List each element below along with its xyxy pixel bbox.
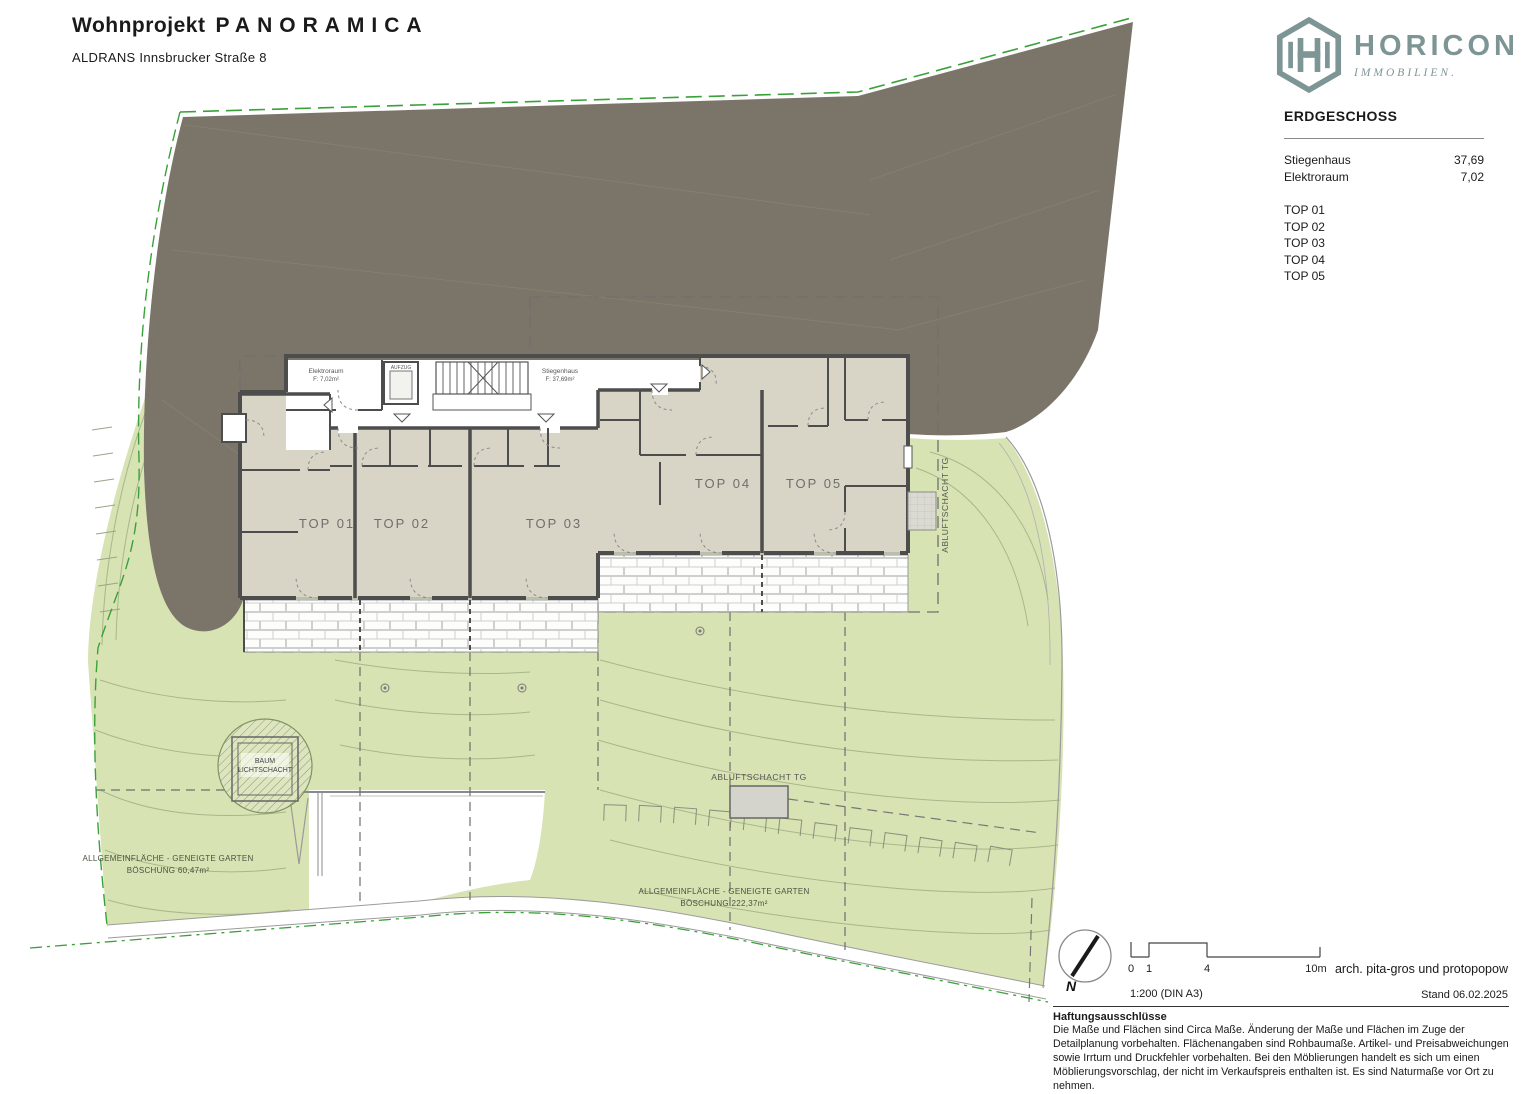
- logo-name: HORICON: [1354, 32, 1519, 61]
- terrace-left: [244, 600, 598, 652]
- legend-room-label: Stiegenhaus: [1284, 152, 1351, 169]
- legend-unit-top01: TOP 01: [1284, 202, 1484, 219]
- horicon-logo: HORICON IMMOBILIEN.: [1276, 16, 1519, 94]
- legend-unit-top02: TOP 02: [1284, 219, 1484, 236]
- legend-unit-list: TOP 01 TOP 02 TOP 03 TOP 04 TOP 05: [1284, 202, 1484, 285]
- label-top02: TOP 02: [374, 516, 430, 531]
- legend-unit-top04: TOP 04: [1284, 252, 1484, 269]
- scale-tick-1: 1: [1146, 963, 1152, 975]
- elevator-label: AUFZUG: [391, 365, 412, 371]
- scale-note: 1:200 (DIN A3): [1130, 988, 1203, 1000]
- date-note: Stand 06.02.2025: [1421, 989, 1508, 1001]
- legend-room-label: Elektroraum: [1284, 169, 1349, 186]
- label-top05: TOP 05: [786, 476, 842, 491]
- footer-divider: [1053, 1006, 1509, 1007]
- legend-divider: [1284, 138, 1484, 139]
- horicon-logo-icon: [1276, 16, 1342, 94]
- terrace-right: [598, 555, 908, 612]
- abluft-shaft-right: [908, 492, 936, 530]
- project-name: PANORAMICA: [215, 14, 428, 37]
- page-title: WohnprojektPANORAMICA: [72, 14, 429, 38]
- label-top04: TOP 04: [695, 476, 751, 491]
- legend-title: ERDGESCHOSS: [1284, 108, 1484, 124]
- elevator: AUFZUG: [384, 362, 418, 404]
- legend-panel: ERDGESCHOSS Stiegenhaus 37,69 Elektrorau…: [1284, 108, 1484, 285]
- disclaimer: Haftungsausschlüsse Die Maße und Flächen…: [1053, 1011, 1511, 1094]
- entry-niche: [222, 414, 246, 442]
- abluft-shaft-bottom: [730, 786, 788, 818]
- label-elektroraum: Elektroraum: [308, 368, 343, 375]
- tree-lightshaft: BAUM LICHTSCHACHT: [218, 719, 312, 813]
- disclaimer-title: Haftungsausschlüsse: [1053, 1011, 1511, 1023]
- garden-left-line1: ALLGEMEINFLÄCHE - GENEIGTE GARTEN: [82, 854, 253, 863]
- legend-row-stiegenhaus: Stiegenhaus 37,69: [1284, 152, 1484, 169]
- legend-row-elektroraum: Elektroraum 7,02: [1284, 169, 1484, 186]
- label-top03: TOP 03: [526, 516, 582, 531]
- disclaimer-body: Die Maße und Flächen sind Circa Maße. Än…: [1053, 1024, 1511, 1094]
- scale-tick-0: 0: [1128, 963, 1134, 975]
- architect-credit: arch. pita-gros und protopopow: [1335, 962, 1508, 976]
- scale-bar: 0 1 4 10m: [1128, 942, 1327, 975]
- north-label: N: [1066, 978, 1077, 994]
- label-top01: TOP 01: [299, 516, 355, 531]
- garden-right-line2: BÖSCHUNG 222,37m²: [680, 899, 767, 908]
- project-label: Wohnprojekt: [72, 14, 205, 37]
- page-header: WohnprojektPANORAMICA ALDRANS Innsbrucke…: [72, 14, 429, 65]
- label-elektroraum-area: F: 7,02m²: [313, 377, 339, 383]
- label-stiegenhaus-area: F: 37,69m²: [545, 377, 574, 383]
- north-compass: N: [1059, 930, 1111, 994]
- legend-room-value: 7,02: [1461, 169, 1484, 186]
- scale-tick-4: 4: [1204, 963, 1210, 975]
- legend-unit-top03: TOP 03: [1284, 235, 1484, 252]
- garden-right-line1: ALLGEMEINFLÄCHE - GENEIGTE GARTEN: [638, 887, 809, 896]
- label-stiegenhaus: Stiegenhaus: [542, 368, 579, 375]
- abluft-bottom-label: ABLUFTSCHACHT TG: [711, 772, 807, 782]
- abluft-right-label: ABLUFTSCHACHT TG: [940, 457, 950, 553]
- baum-label-line2: LICHTSCHACHT: [238, 767, 293, 774]
- project-address: ALDRANS Innsbrucker Straße 8: [72, 50, 429, 65]
- legend-unit-top05: TOP 05: [1284, 268, 1484, 285]
- garden-left-line2: BÖSCHUNG 60,47m²: [127, 866, 210, 875]
- building: AUFZUG: [222, 356, 936, 652]
- logo-tagline: IMMOBILIEN.: [1354, 67, 1519, 79]
- legend-room-value: 37,69: [1454, 152, 1484, 169]
- baum-label-line1: BAUM: [255, 758, 275, 765]
- scale-tick-10m: 10m: [1305, 963, 1326, 975]
